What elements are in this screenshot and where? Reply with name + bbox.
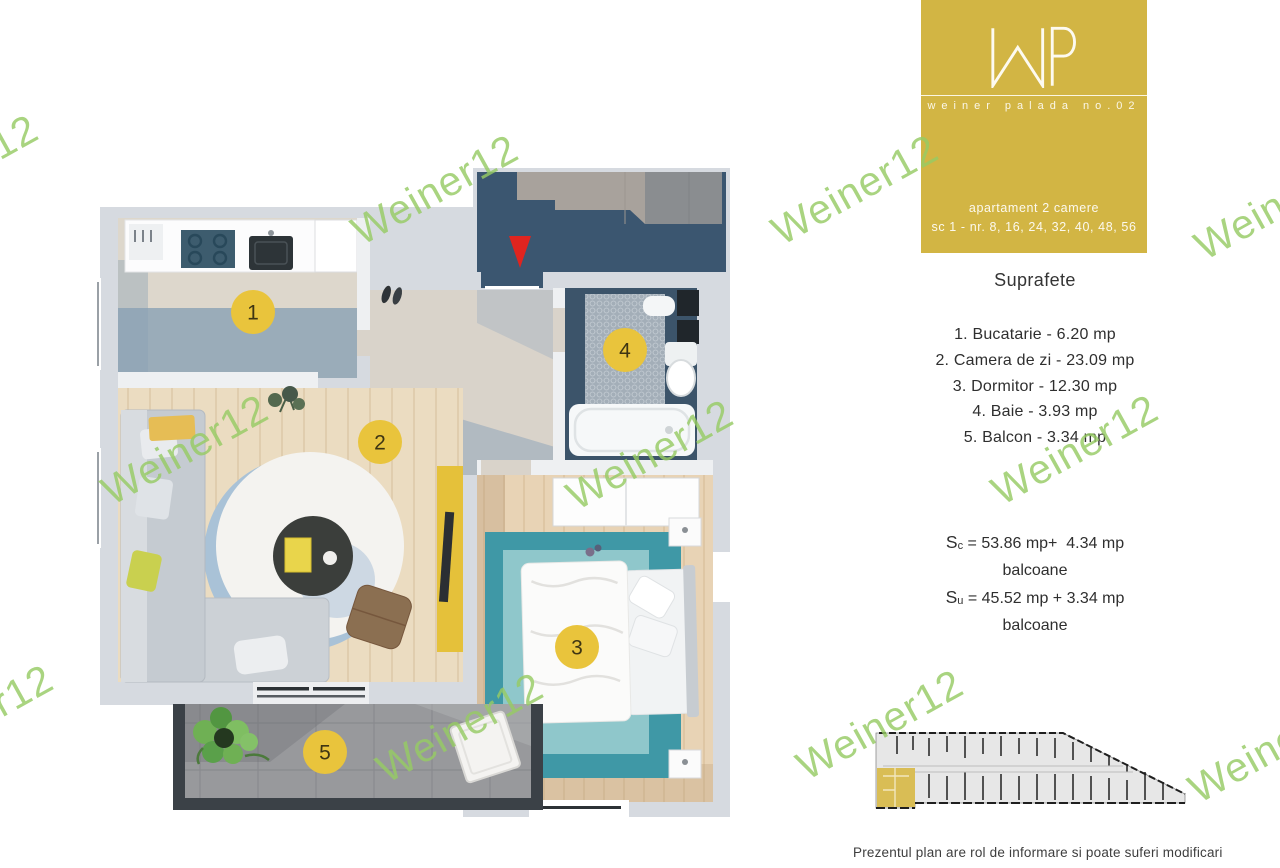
total-built-area: Sc = 53.86 mp+ 4.34 mp <box>890 529 1180 558</box>
bed <box>521 559 699 724</box>
highlighted-unit <box>877 768 915 807</box>
wp-logo-icon <box>989 26 1081 88</box>
entrance-vestibule <box>481 272 543 288</box>
brand-line: weiner palada no.02 <box>921 100 1147 112</box>
logo-divider <box>921 95 1147 96</box>
toilet <box>665 342 697 396</box>
area-totals: Sc = 53.86 mp+ 4.34 mp balcoane Su = 45.… <box>890 529 1180 639</box>
room-list-item: 2. Camera de zi - 23.09 mp <box>890 348 1180 374</box>
bathroom <box>553 288 699 460</box>
bathroom-sink <box>643 296 675 316</box>
balcony <box>173 704 543 810</box>
total-usable-area: Su = 45.52 mp + 3.34 mp <box>890 584 1180 613</box>
svg-text:2: 2 <box>374 432 386 455</box>
room-marker: 5 <box>303 730 347 774</box>
watermark-text: Weiner12 <box>0 105 46 235</box>
book <box>285 538 311 572</box>
surfaces-heading: Suprafete <box>920 270 1150 291</box>
svg-text:4: 4 <box>619 340 631 363</box>
watermark-text: Weiner12 <box>1181 683 1280 813</box>
disclaimer-text: Prezentul plan are rol de informare si p… <box>853 845 1223 860</box>
room-list-item: 5. Balcon - 3.34 mp <box>890 425 1180 451</box>
logo-card: weiner palada no.02 apartament 2 camere … <box>921 0 1147 253</box>
room-list: 1. Bucatarie - 6.20 mp 2. Camera de zi -… <box>890 322 1180 451</box>
living-room <box>118 386 463 705</box>
bathtub <box>569 404 695 456</box>
sofa-tray <box>148 415 195 441</box>
room-marker: 4 <box>603 328 647 372</box>
svg-text:5: 5 <box>319 742 331 765</box>
entry-corridor <box>477 172 726 289</box>
brochure-page: 1 2 3 4 5 weiner palada no.02 apartament… <box>0 0 1280 868</box>
total-usable-area-note: balcoane <box>890 613 1180 639</box>
room-marker: 3 <box>555 625 599 669</box>
building-key-plan <box>873 726 1193 814</box>
watermark-text: Weiner12 <box>0 655 61 785</box>
total-built-area-note: balcoane <box>890 558 1180 584</box>
floor-plan: 1 2 3 4 5 <box>85 160 745 830</box>
room-list-item: 4. Baie - 3.93 mp <box>890 399 1180 425</box>
unit-numbers: sc 1 - nr. 8, 16, 24, 32, 40, 48, 56 <box>921 220 1147 234</box>
watermark-text: Weiner12 <box>764 125 947 255</box>
room-list-item: 1. Bucatarie - 6.20 mp <box>890 322 1180 348</box>
building-outline <box>876 733 1185 808</box>
stove-hob <box>181 230 235 268</box>
apartment-type: apartament 2 camere <box>921 201 1147 215</box>
svg-text:3: 3 <box>571 637 583 660</box>
svg-text:1: 1 <box>247 302 259 325</box>
washing-machine <box>677 290 699 316</box>
balcony-door <box>253 682 369 705</box>
kitchen-cabinet <box>315 220 357 272</box>
room-list-item: 3. Dormitor - 12.30 mp <box>890 374 1180 400</box>
room-marker: 1 <box>231 290 275 334</box>
watermark-text: Weiner12 <box>1187 140 1280 270</box>
room-marker: 2 <box>358 420 402 464</box>
